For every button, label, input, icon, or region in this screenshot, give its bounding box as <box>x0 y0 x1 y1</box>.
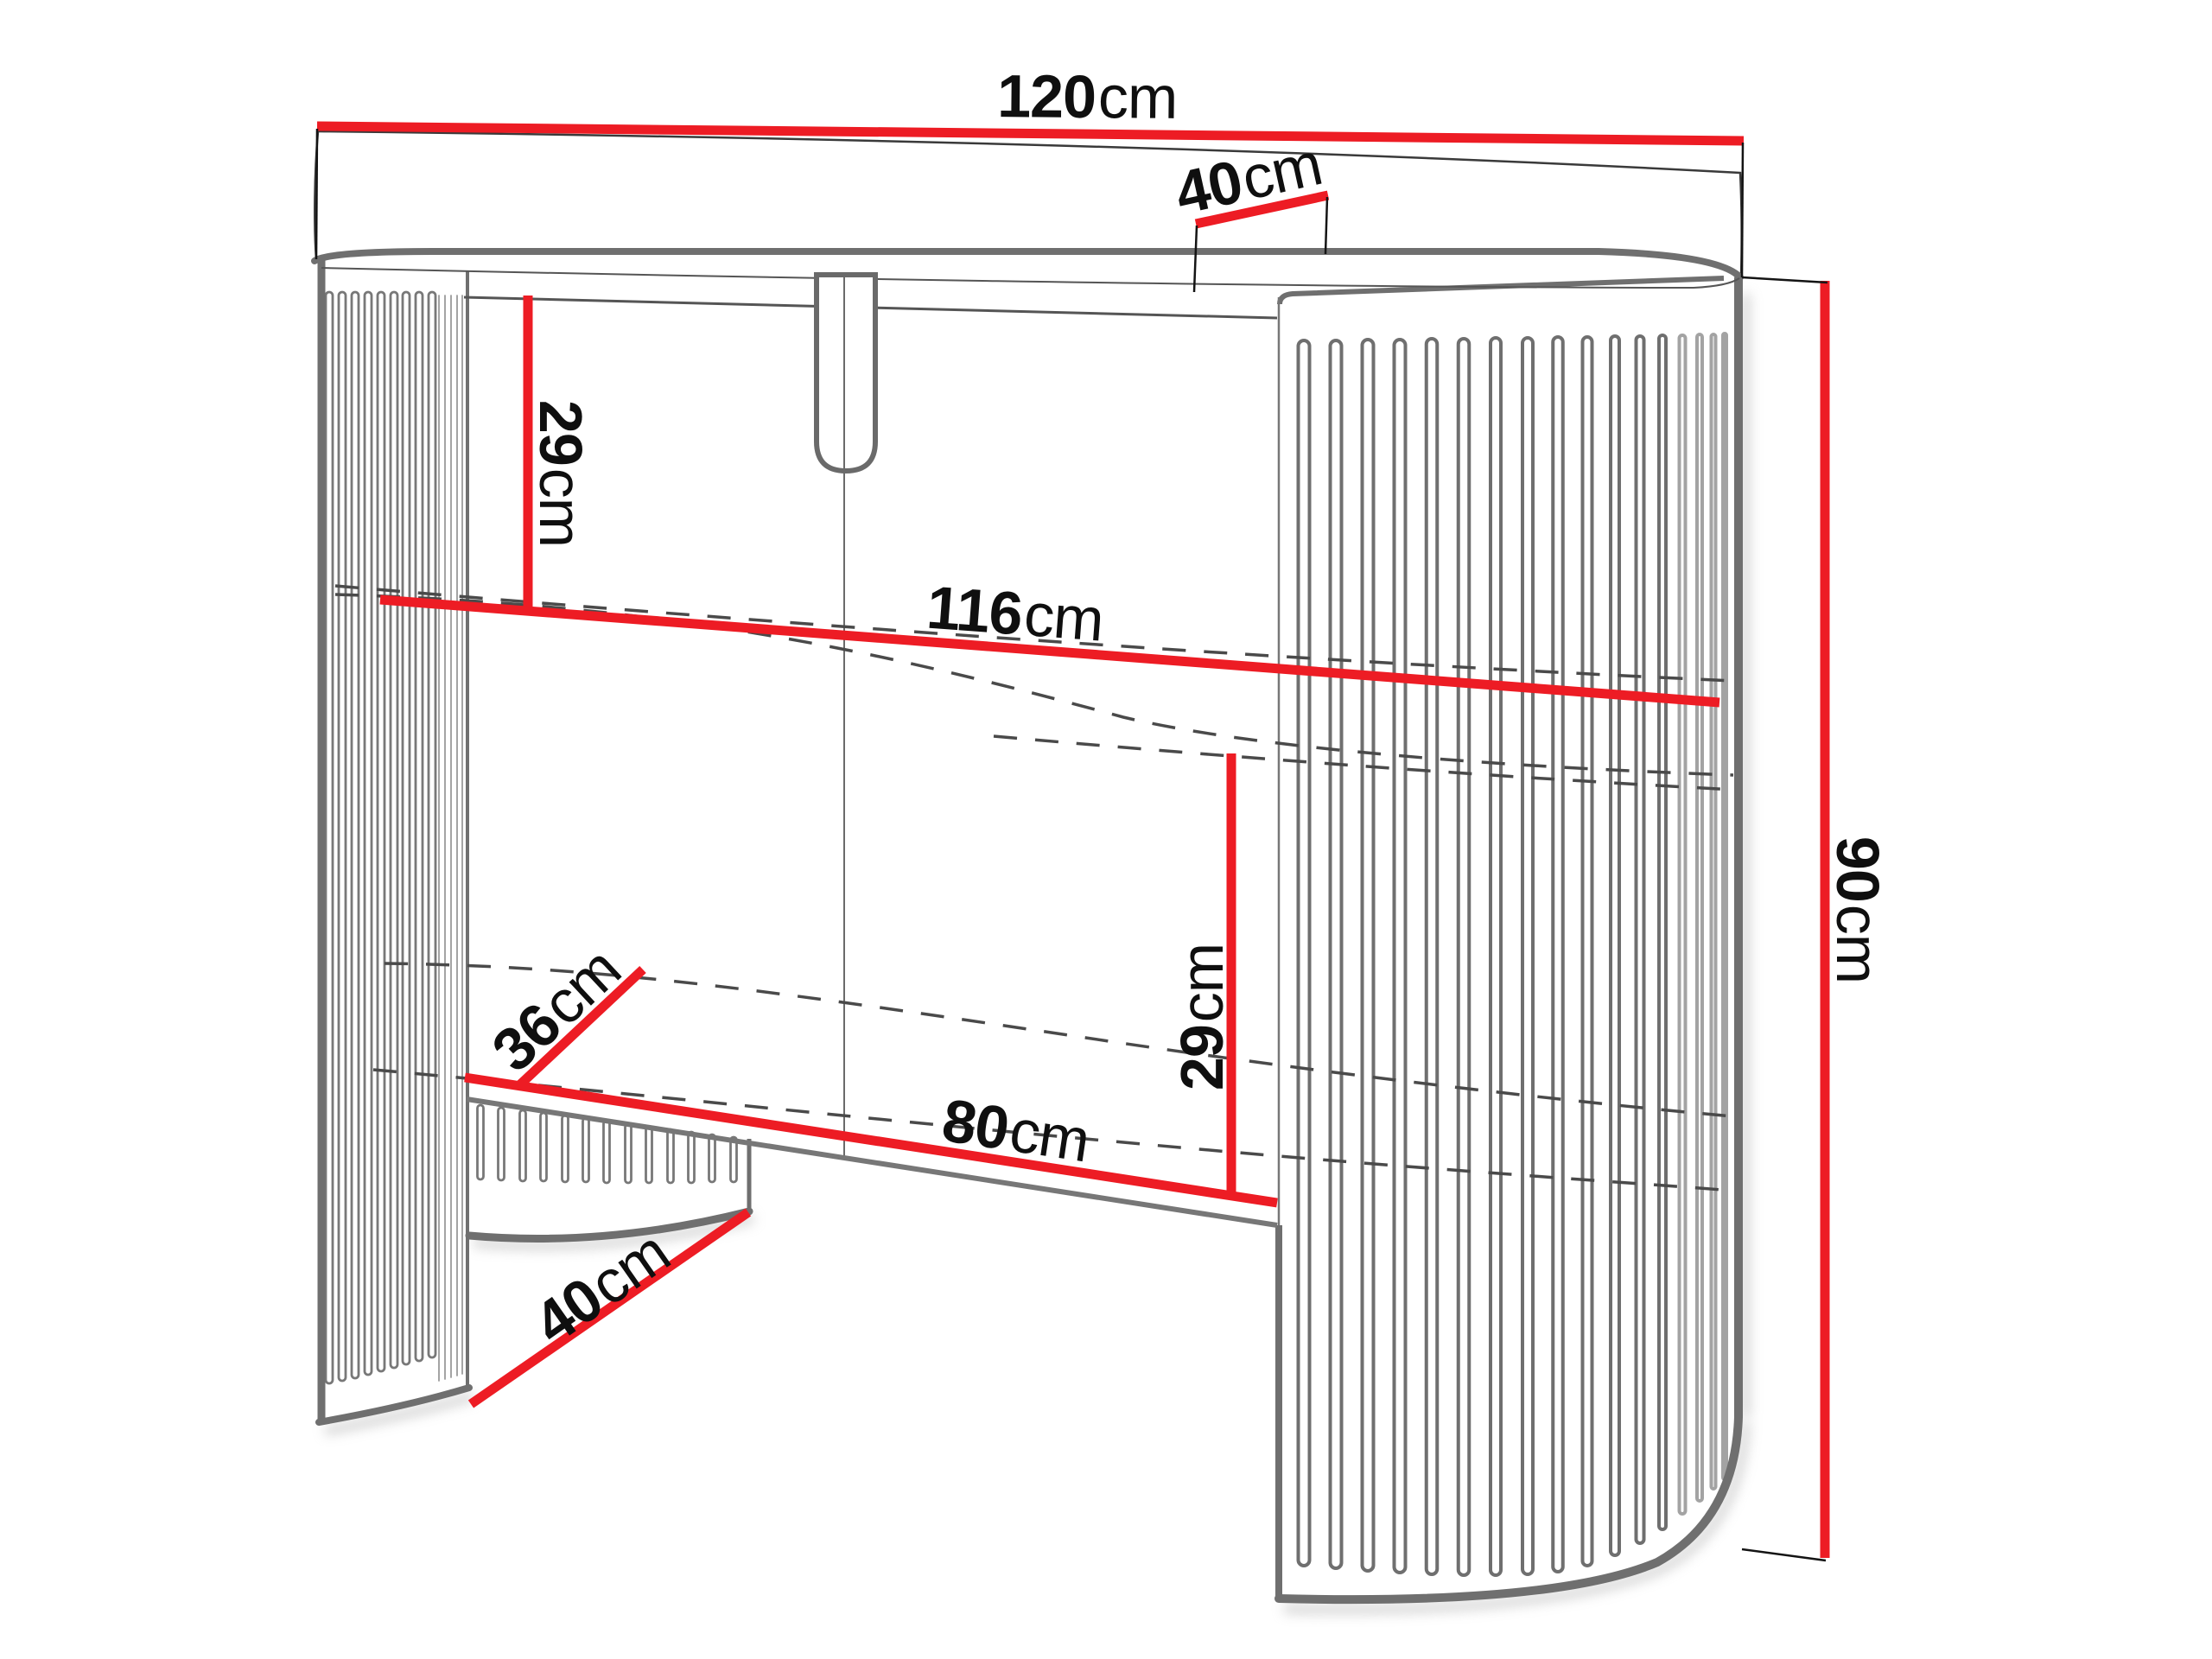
slat <box>326 292 333 1383</box>
label-90cm: 90cm <box>1824 836 1891 983</box>
label-29cm-mid: 29cm <box>1168 944 1236 1090</box>
slat <box>520 1110 526 1181</box>
slat <box>339 292 346 1381</box>
slat <box>391 292 397 1368</box>
slat <box>1659 335 1666 1529</box>
slat <box>1583 337 1592 1566</box>
leader-120-left <box>316 129 317 259</box>
label-29cm-left: 29cm <box>527 400 594 547</box>
slat <box>604 1121 610 1183</box>
diagram-page: 120cm 40cm 29cm 116cm 90cm 36cm 80cm 29c… <box>0 0 2212 1659</box>
slat <box>1522 338 1533 1574</box>
slat <box>403 292 410 1364</box>
slat <box>646 1127 652 1183</box>
slat <box>709 1135 715 1182</box>
slat <box>541 1113 547 1181</box>
slat <box>1637 336 1644 1543</box>
slat <box>378 292 385 1371</box>
slat <box>689 1132 695 1183</box>
slat <box>1712 334 1716 1489</box>
slat <box>1395 340 1406 1573</box>
slat <box>1723 334 1726 1479</box>
slat <box>731 1137 737 1182</box>
slat <box>563 1116 569 1182</box>
slat <box>1331 340 1342 1568</box>
slat <box>668 1129 674 1183</box>
slat <box>626 1124 632 1183</box>
left-panel-slats <box>326 292 435 1383</box>
handle <box>817 275 875 471</box>
right-panel-face <box>1279 278 1738 1599</box>
slat <box>1427 339 1438 1574</box>
slat <box>1611 336 1619 1555</box>
slat <box>1491 338 1501 1575</box>
slat <box>478 1105 484 1179</box>
slat <box>365 292 372 1375</box>
slat <box>1459 339 1470 1575</box>
slat <box>416 292 423 1361</box>
label-116cm: 116cm <box>925 574 1106 654</box>
slat <box>1680 335 1686 1514</box>
slat <box>583 1118 589 1182</box>
slat <box>1363 340 1374 1571</box>
leader-120-right <box>1742 143 1743 277</box>
slat <box>1553 337 1563 1572</box>
slat <box>499 1108 505 1180</box>
diagram-canvas: 120cm 40cm 29cm 116cm 90cm 36cm 80cm 29c… <box>0 0 2212 1659</box>
slat <box>1697 334 1702 1501</box>
slat <box>1299 340 1310 1566</box>
left-panel <box>319 259 469 1424</box>
label-120cm: 120cm <box>997 62 1178 131</box>
slat <box>352 292 359 1378</box>
slat <box>429 292 435 1357</box>
right-panel <box>1279 278 1738 1599</box>
